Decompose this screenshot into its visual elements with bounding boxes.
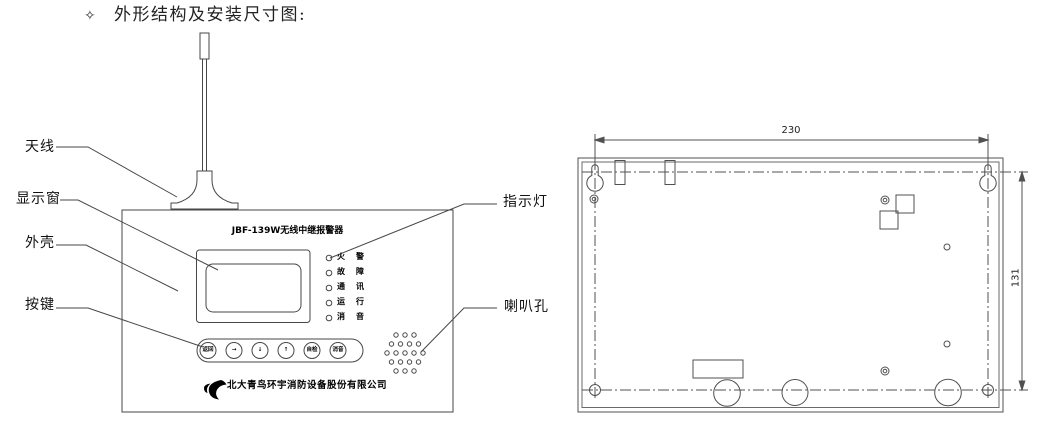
- button-silence: 消音: [325, 347, 351, 353]
- bird-logo-icon: [204, 380, 227, 400]
- button-down: ↓: [247, 347, 273, 353]
- device-model-title: JBF-139W无线中继报警器: [122, 226, 453, 236]
- display-window: [197, 250, 311, 323]
- callout-speaker-label: 喇叭孔: [504, 299, 549, 315]
- dimension-width: [595, 134, 988, 159]
- button-enter: →: [221, 347, 247, 353]
- page: { "header": { "bullet": "✧", "title": "外…: [0, 0, 1055, 421]
- indicator-label-comm: 通讯: [337, 282, 375, 291]
- rear-plate-outline: [578, 158, 1003, 412]
- callout-case-label: 外壳: [25, 235, 55, 251]
- dimension-height-label: 131: [1010, 262, 1022, 294]
- callout-indicator-label: 指示灯: [503, 194, 548, 210]
- mounting-holes: [590, 195, 994, 406]
- heading-bullet-icon: ✧: [84, 8, 96, 24]
- diagram-linework: [0, 0, 1055, 421]
- indicator-led-icons: [326, 255, 332, 321]
- page-title: 外形结构及安装尺寸图:: [114, 6, 306, 26]
- callout-display-label: 显示窗: [16, 191, 61, 207]
- indicator-label-run: 运行: [337, 297, 375, 306]
- button-back: 返回: [195, 347, 221, 353]
- company-name: 北大青鸟环宇消防设备股份有限公司: [227, 381, 387, 392]
- center-lines: [582, 159, 1028, 401]
- dimension-width-label: 230: [771, 125, 811, 137]
- callout-buttons-label: 按键: [25, 297, 55, 313]
- button-test: 自检: [299, 347, 325, 353]
- speaker-holes-icon: [385, 333, 425, 373]
- indicator-label-silence: 消音: [337, 312, 375, 321]
- callout-antenna-label: 天线: [25, 139, 55, 155]
- front-view-drawing: [56, 33, 497, 412]
- rear-view-drawing: [578, 134, 1028, 412]
- antenna-icon: [171, 33, 238, 209]
- indicator-label-fault: 故障: [337, 267, 375, 276]
- indicator-label-fire: 火警: [337, 252, 375, 261]
- button-up: ↑: [273, 347, 299, 353]
